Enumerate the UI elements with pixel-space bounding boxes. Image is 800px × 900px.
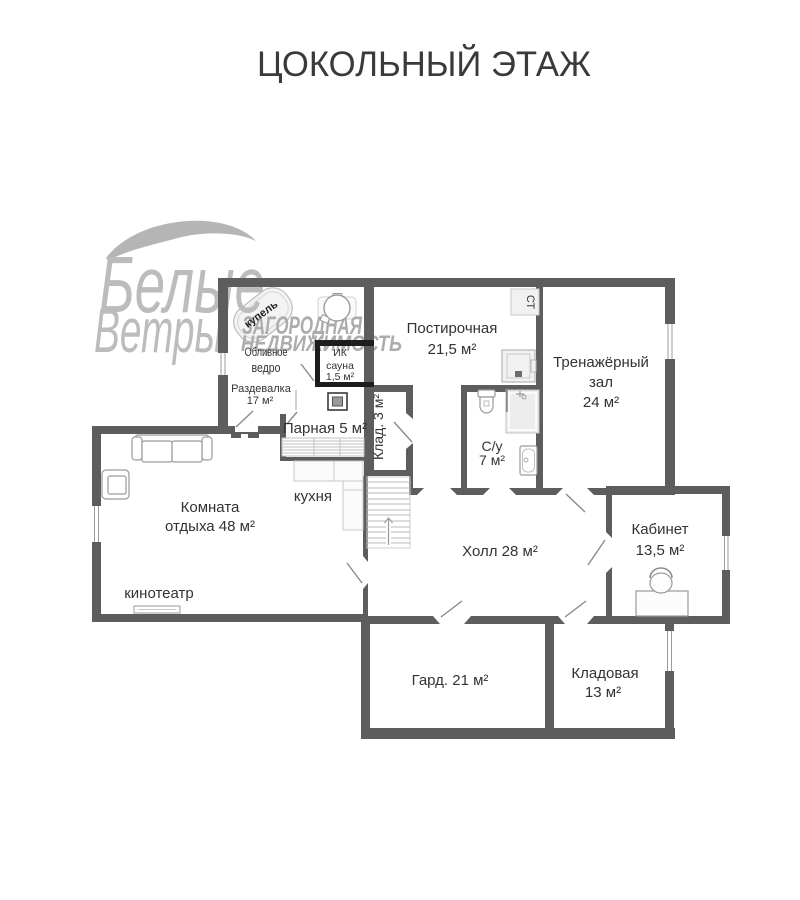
svg-text:отдыха 48 м²: отдыха 48 м² [165,518,255,535]
svg-text:ИК: ИК [333,347,348,359]
svg-text:Тренажёрный: Тренажёрный [553,354,649,371]
svg-text:ведро: ведро [252,360,281,375]
svg-text:Холл 28 м²: Холл 28 м² [462,543,538,560]
svg-text:13,5 м²: 13,5 м² [636,542,685,559]
svg-text:зал: зал [589,374,613,391]
svg-text:7 м²: 7 м² [479,452,505,468]
svg-text:Кладовая: Кладовая [571,665,638,682]
svg-text:21,5 м²: 21,5 м² [428,341,477,358]
svg-text:Кабинет: Кабинет [631,521,688,538]
svg-text:Клад. 3 м²: Клад. 3 м² [370,394,386,460]
svg-text:Комната: Комната [181,499,240,516]
svg-text:ЦОКОЛЬНЫЙ ЭТАЖ: ЦОКОЛЬНЫЙ ЭТАЖ [257,44,591,84]
svg-text:24 м²: 24 м² [583,394,619,411]
svg-text:17 м²: 17 м² [247,395,274,407]
svg-text:13 м²: 13 м² [585,684,621,701]
svg-text:Раздевалка: Раздевалка [231,383,292,395]
svg-text:Гард. 21 м²: Гард. 21 м² [412,672,489,689]
svg-text:кинотеатр: кинотеатр [124,585,194,602]
svg-text:Парная 5 м²: Парная 5 м² [283,420,367,437]
svg-text:СТ: СТ [524,295,536,310]
svg-text:1,5 м²: 1,5 м² [326,371,355,383]
svg-text:Обливное: Обливное [245,345,288,359]
svg-text:Постирочная: Постирочная [407,320,498,337]
svg-text:Ветры: Ветры [94,297,223,366]
svg-text:кухня: кухня [294,488,332,505]
